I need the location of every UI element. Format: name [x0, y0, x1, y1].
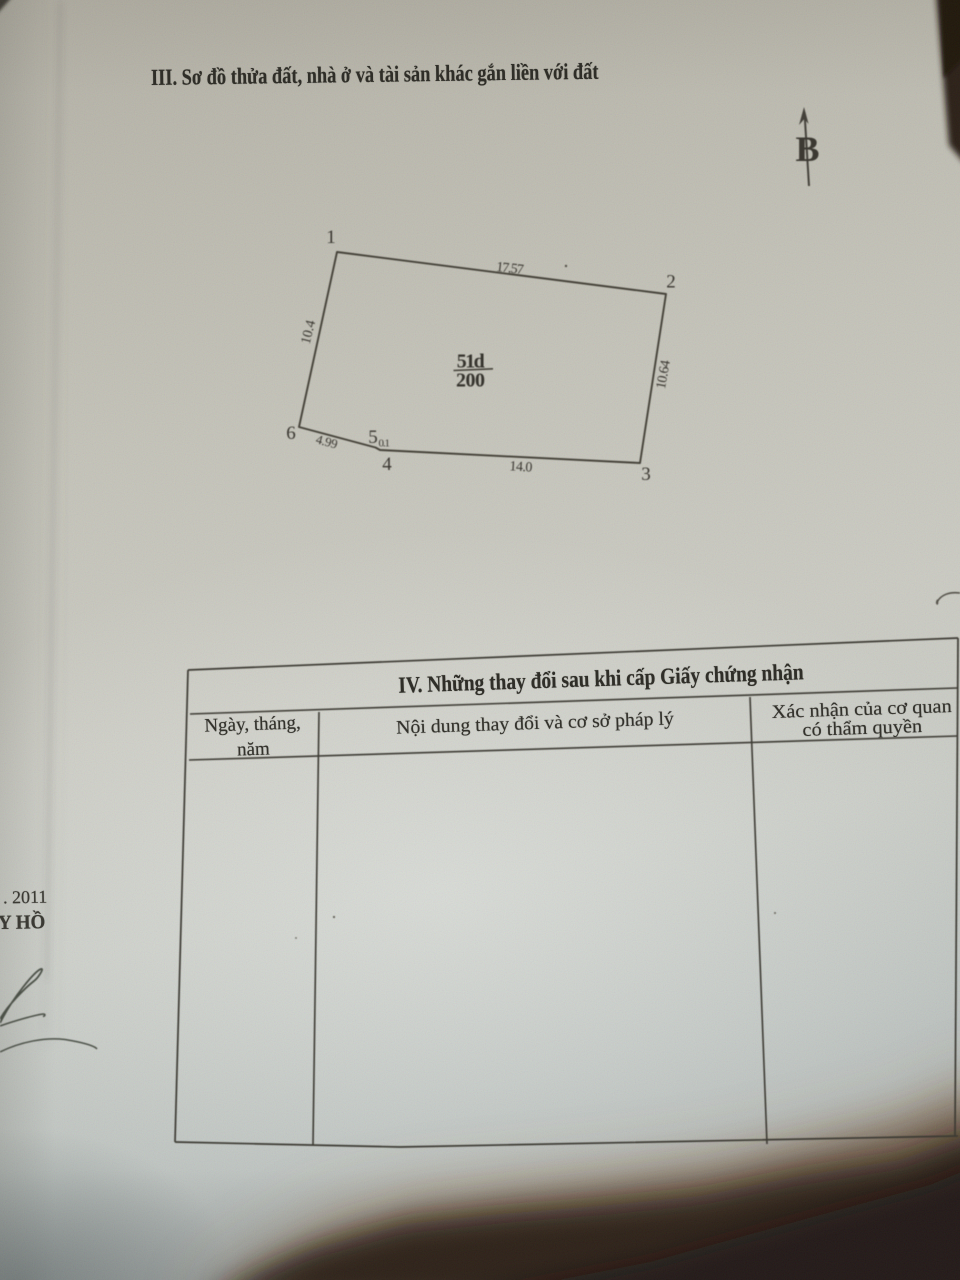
svg-text:4.99: 4.99 [314, 431, 339, 451]
svg-text:14.0: 14.0 [509, 459, 533, 475]
svg-text:1: 1 [326, 227, 336, 248]
svg-text:B: B [795, 129, 819, 169]
svg-text:200: 200 [456, 370, 485, 392]
svg-text:17.57: 17.57 [495, 260, 524, 278]
svg-text:10.64: 10.64 [654, 359, 674, 390]
svg-text:5: 5 [368, 427, 378, 448]
svg-text:3: 3 [641, 464, 651, 485]
svg-text:6: 6 [286, 423, 296, 444]
svg-text:0.1: 0.1 [379, 438, 391, 450]
svg-text:4: 4 [382, 454, 392, 475]
svg-text:10.4: 10.4 [299, 319, 319, 346]
svg-text:2: 2 [666, 272, 676, 293]
